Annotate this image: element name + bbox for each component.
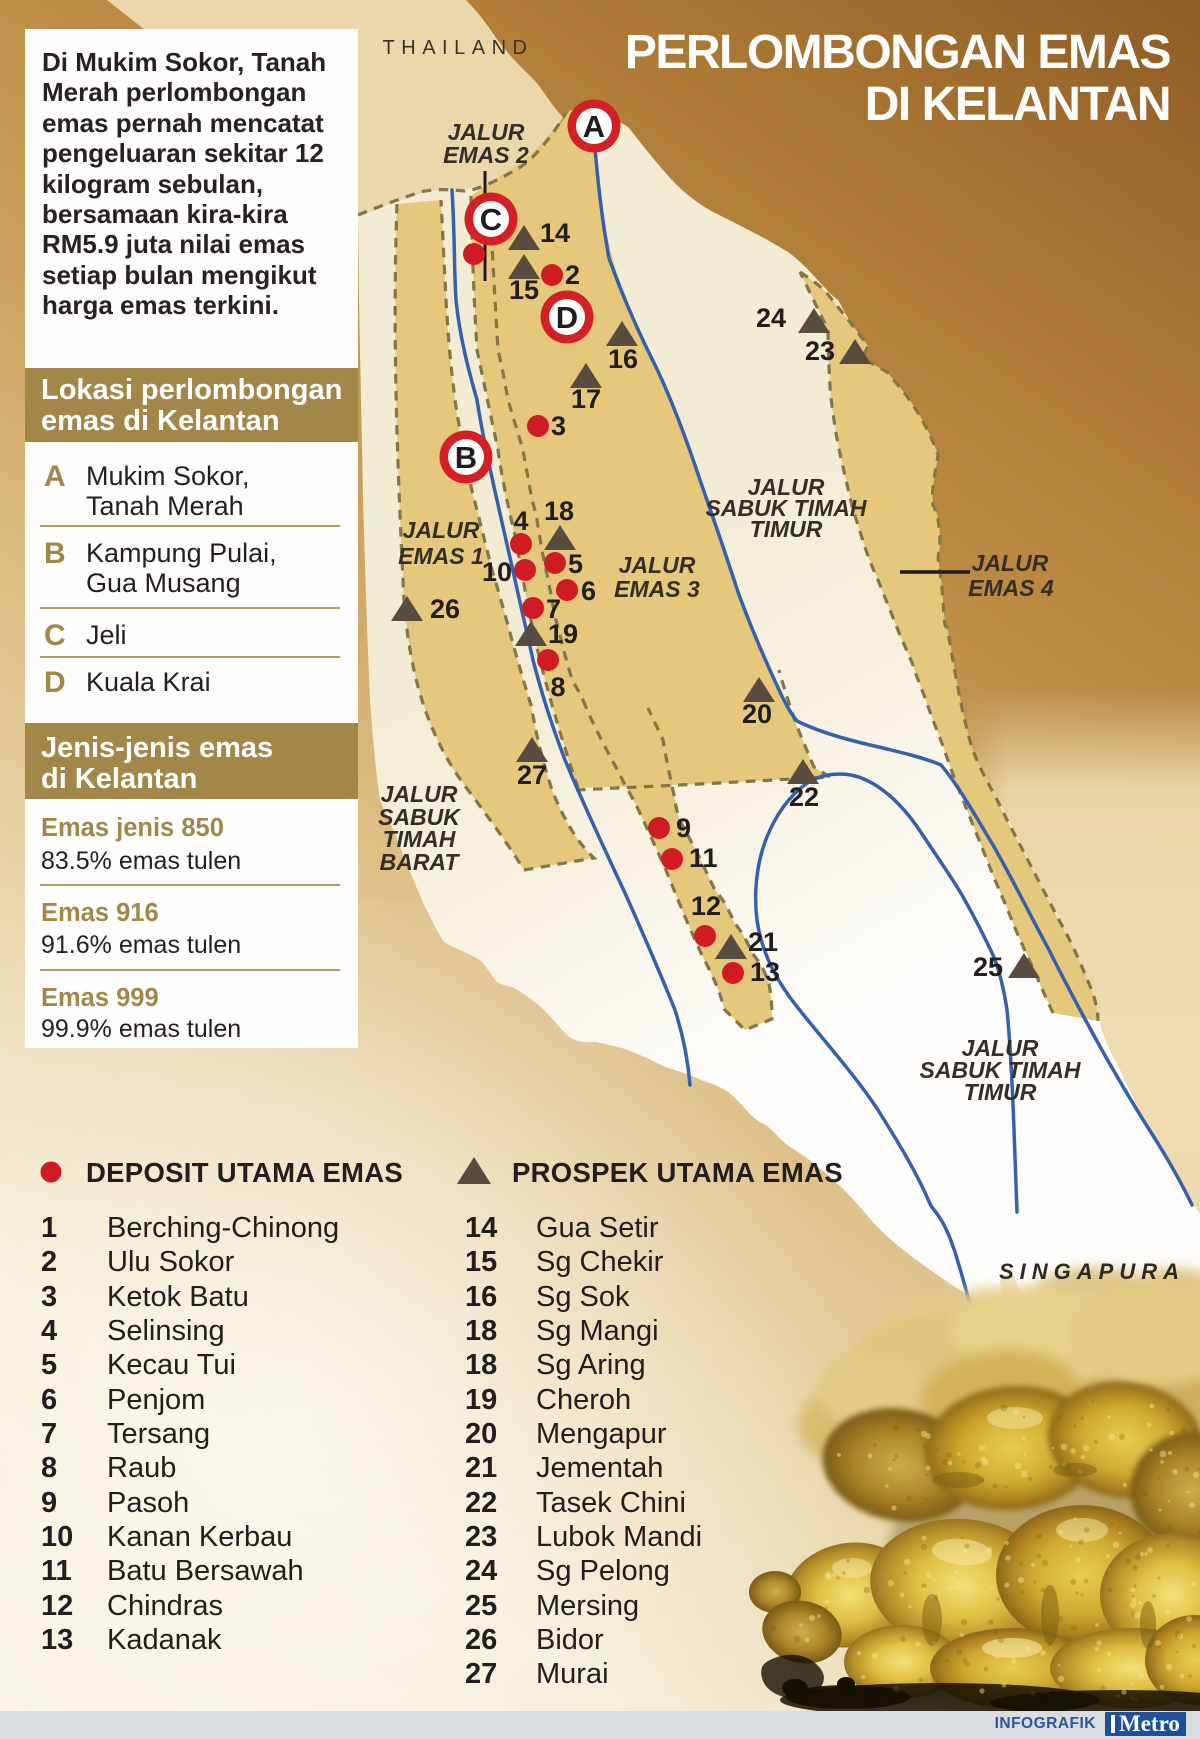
svg-text:5: 5	[568, 549, 583, 579]
svg-text:25: 25	[973, 952, 1003, 982]
svg-text:20: 20	[742, 699, 772, 729]
svg-text:22: 22	[789, 782, 819, 812]
svg-text:26: 26	[430, 594, 460, 624]
svg-text:JALUR: JALUR	[403, 517, 480, 543]
svg-text:19: 19	[548, 619, 578, 649]
svg-text:11: 11	[689, 843, 718, 873]
svg-text:EMAS 2: EMAS 2	[443, 142, 529, 168]
svg-text:16: 16	[608, 344, 638, 374]
svg-text:6: 6	[581, 576, 596, 606]
svg-text:EMAS 4: EMAS 4	[968, 575, 1054, 601]
svg-text:EMAS 1: EMAS 1	[398, 543, 484, 569]
svg-text:24: 24	[756, 303, 786, 333]
svg-text:SINGAPURA: SINGAPURA	[999, 1259, 1185, 1284]
svg-text:TIMUR: TIMUR	[964, 1079, 1037, 1105]
svg-text:EMAS 3: EMAS 3	[614, 576, 700, 602]
svg-text:9: 9	[676, 813, 691, 843]
svg-text:TIMUR: TIMUR	[750, 516, 823, 542]
svg-text:THAILAND: THAILAND	[383, 37, 534, 59]
svg-text:21: 21	[748, 927, 778, 957]
svg-text:8: 8	[550, 672, 565, 702]
svg-text:27: 27	[517, 760, 547, 790]
svg-text:13: 13	[750, 957, 780, 987]
svg-text:10: 10	[482, 557, 512, 587]
svg-text:12: 12	[691, 891, 721, 921]
svg-text:18: 18	[544, 496, 574, 526]
svg-text:C: C	[480, 202, 502, 237]
svg-text:A: A	[583, 109, 605, 144]
svg-text:JALUR: JALUR	[619, 552, 696, 578]
svg-text:3: 3	[551, 411, 566, 441]
svg-text:14: 14	[540, 218, 570, 248]
svg-text:D: D	[556, 300, 578, 335]
svg-text:BARAT: BARAT	[380, 849, 461, 875]
svg-text:4: 4	[513, 506, 528, 536]
svg-text:23: 23	[805, 336, 835, 366]
svg-text:17: 17	[571, 384, 601, 414]
svg-text:2: 2	[565, 260, 580, 290]
svg-text:B: B	[455, 440, 477, 475]
svg-text:JALUR: JALUR	[972, 550, 1049, 576]
svg-text:15: 15	[509, 275, 539, 305]
